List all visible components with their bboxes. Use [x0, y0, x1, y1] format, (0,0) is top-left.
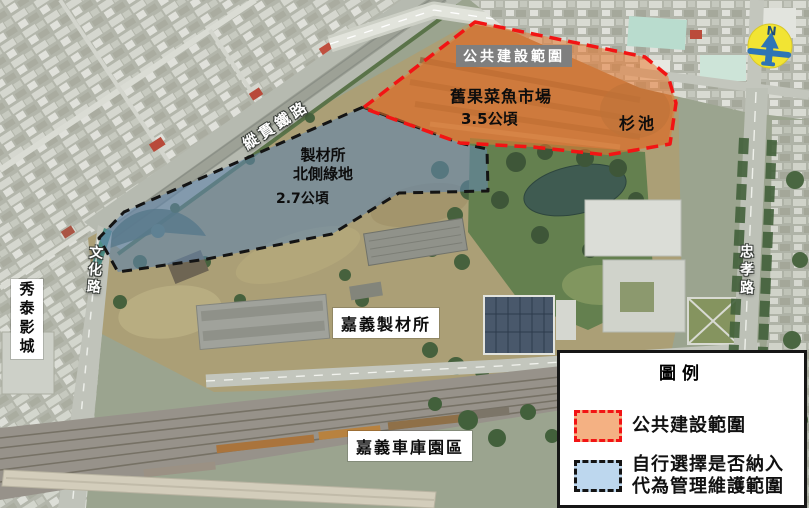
- green-zone-name-label: 製材所 北側綠地: [283, 146, 363, 184]
- legend-item-public: 公共建設範圍: [574, 410, 746, 442]
- public-zone-title-box: 公共建設範圍: [456, 45, 572, 67]
- managed-zone-swatch: [574, 460, 622, 492]
- depot-park-label-box: 嘉義車庫園區: [348, 431, 472, 461]
- legend-item-managed-line1: 自行選擇是否納入: [632, 454, 784, 476]
- market-name-label: 舊果菜魚市場: [450, 83, 552, 107]
- wenhua-road-label: 文化路: [82, 244, 106, 296]
- compass-north-letter: N: [766, 24, 777, 39]
- green-zone-name-line2: 北側綠地: [283, 165, 363, 184]
- public-zone-swatch: [574, 410, 622, 442]
- legend-item-managed-line2: 代為管理維護範圍: [632, 476, 784, 498]
- sawmill-label-box: 嘉義製材所: [333, 308, 439, 338]
- legend-item-public-label: 公共建設範圍: [632, 415, 746, 437]
- legend-title: 圖例: [560, 359, 804, 384]
- pond-name-label: 杉池: [619, 110, 657, 134]
- legend-item-managed-label: 自行選擇是否納入 代為管理維護範圍: [632, 454, 784, 498]
- green-zone-name-line1: 製材所: [283, 146, 363, 165]
- legend: 圖例 公共建設範圍 自行選擇是否納入 代為管理維護範圍: [557, 350, 807, 508]
- market-area-label: 3.5公頃: [461, 108, 518, 129]
- zhongxiao-road-label: 忠孝路: [736, 244, 756, 298]
- legend-item-managed: 自行選擇是否納入 代為管理維護範圍: [574, 454, 784, 498]
- green-zone-area-label: 2.7公頃: [276, 188, 329, 208]
- cinema-label-box: 秀泰影城: [11, 279, 43, 359]
- aerial-map: N 公共建設範圍 舊果菜魚市場 3.5公頃 杉池 製材所 北側綠地 2.7公頃 …: [0, 0, 809, 508]
